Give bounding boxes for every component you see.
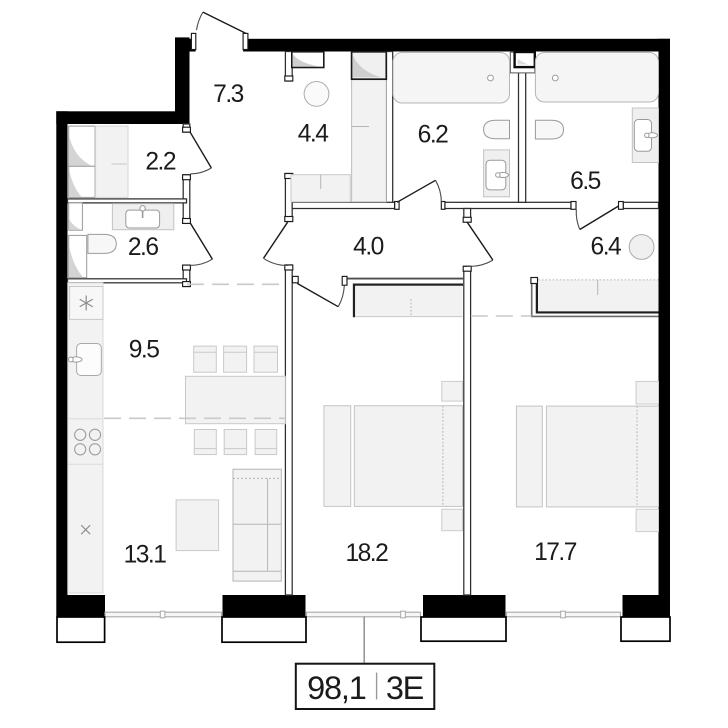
svg-text:2.6: 2.6 — [128, 234, 159, 261]
svg-text:6.4: 6.4 — [591, 234, 622, 261]
svg-text:4.0: 4.0 — [353, 234, 384, 261]
svg-text:9.5: 9.5 — [129, 337, 160, 364]
svg-text:13.1: 13.1 — [124, 542, 167, 569]
svg-text:6.2: 6.2 — [418, 122, 449, 149]
svg-text:17.7: 17.7 — [534, 539, 577, 566]
svg-text:7.3: 7.3 — [213, 81, 244, 108]
svg-text:18.2: 18.2 — [345, 540, 388, 567]
svg-text:4.4: 4.4 — [298, 120, 329, 147]
svg-text:98,1: 98,1 — [307, 670, 366, 706]
svg-text:6.5: 6.5 — [570, 168, 601, 195]
svg-text:3Е: 3Е — [386, 670, 424, 706]
svg-text:2.2: 2.2 — [145, 149, 176, 176]
